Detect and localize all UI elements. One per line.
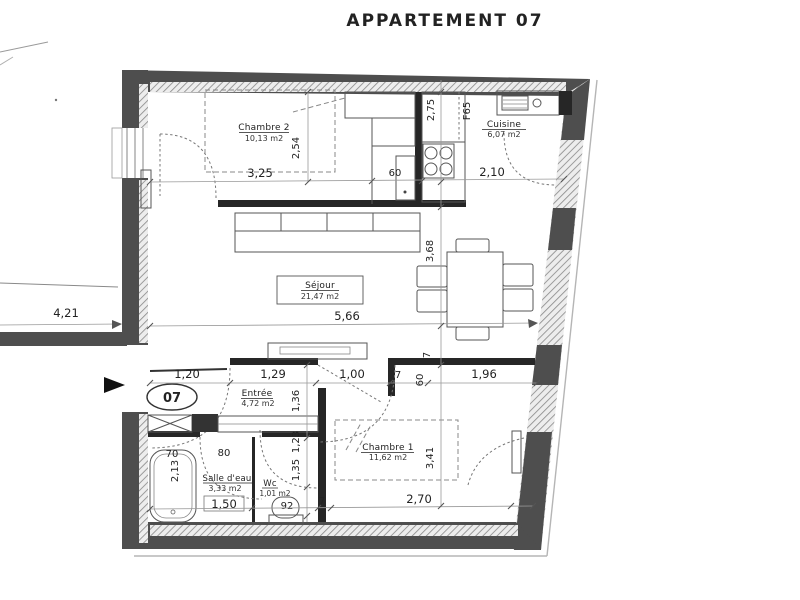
floorplan-drawing: APPARTEMENT 07: [0, 0, 800, 600]
sketch-lines: [0, 42, 57, 101]
dim-fridge: F65: [462, 102, 473, 120]
dim-sejour-width: 5,66: [334, 309, 360, 323]
dim-col-3: 1,35: [291, 459, 302, 481]
floorplan-page: APPARTEMENT 07: [0, 0, 800, 600]
radiator-chambre1: [512, 431, 521, 473]
chambre2-name: Chambre 2: [238, 123, 289, 133]
dim-sde-door: 80: [218, 448, 231, 459]
dim-wall-a: 7: [395, 370, 401, 381]
dim-tub-width: 70: [166, 449, 179, 460]
entrance-arrow-icon: [104, 377, 125, 393]
cuisine-door-arc: [504, 133, 556, 185]
dim-cuisine-depth: 2,75: [426, 99, 437, 121]
dim-closet: 60: [389, 168, 402, 179]
wc-name: Wc: [263, 479, 277, 489]
page-title: APPARTEMENT 07: [346, 11, 543, 31]
unit-badge: 07: [147, 384, 197, 410]
dim-col-1: 1,36: [291, 390, 302, 412]
dim-entree-2: 1,29: [260, 367, 286, 381]
salle-deau-area: 3,33 m2: [208, 484, 241, 493]
room-cuisine: Cuisine 6,07 m2 F65: [422, 91, 572, 202]
chambre1-area: 11,62 m2: [369, 453, 407, 462]
washbasin: [148, 415, 192, 432]
room-chambre2: Chambre 2 10,13 m2: [141, 90, 415, 208]
dim-cuisine-width: 2,10: [479, 165, 505, 179]
sejour-label-box: Séjour 21,47 m2: [277, 276, 363, 304]
dim-chambre2-depth: 2,54: [291, 137, 302, 159]
dim-sejour-depth: 3,68: [425, 240, 436, 262]
entree-name: Entrée: [242, 388, 273, 399]
dim-chambre2-width: 3,25: [247, 166, 273, 180]
corridor-wall: [0, 332, 127, 346]
chambre2-door-arc: [160, 134, 216, 198]
sejour-name: Séjour: [305, 280, 335, 291]
salle-deau-name: Salle d'eau: [202, 474, 251, 484]
room-sejour: Séjour 21,47 m2: [235, 213, 533, 359]
cuisine-area: 6,07 m2: [487, 130, 520, 139]
dim-col-2: 1,23: [291, 431, 302, 453]
dim-chambre1-width: 2,70: [406, 492, 432, 506]
kitchen-column: [559, 91, 572, 115]
dim-entree-4: 1,96: [471, 367, 497, 381]
dim-entree-1: 1,20: [174, 367, 200, 381]
corridor: 4,21: [0, 283, 122, 329]
dim-chambre1-depth: 3,41: [425, 447, 436, 469]
dim-wall-b: 7: [422, 352, 433, 358]
dim-corridor: 4,21: [53, 306, 79, 320]
tv-unit: [268, 343, 367, 359]
dim-wc-width: 92: [281, 501, 294, 512]
dim-stub: 60: [415, 374, 426, 387]
chambre1-name: Chambre 1: [362, 443, 413, 453]
chambre1-window-arc: [468, 438, 524, 485]
wc-area: 1,01 m2: [259, 489, 290, 498]
dim-entree-3: 1,00: [339, 367, 365, 381]
entree-closet: [192, 414, 218, 432]
interior-walls: [148, 92, 535, 522]
dim-tub-length: 2,13: [170, 460, 181, 482]
stove: [423, 144, 454, 178]
chambre2-area: 10,13 m2: [245, 134, 283, 143]
dimension-arrow: [112, 320, 122, 329]
entree-counter: [218, 416, 318, 432]
dim-wall-c: 7: [319, 496, 325, 507]
dim-sde-width: 1,50: [211, 497, 237, 511]
sofa: [235, 213, 420, 252]
unit-number: 07: [163, 391, 181, 406]
sejour-area: 21,47 m2: [301, 292, 339, 301]
closet-chambre2: [345, 92, 415, 204]
cuisine-name: Cuisine: [487, 120, 522, 130]
entree-area: 4,72 m2: [241, 399, 274, 408]
